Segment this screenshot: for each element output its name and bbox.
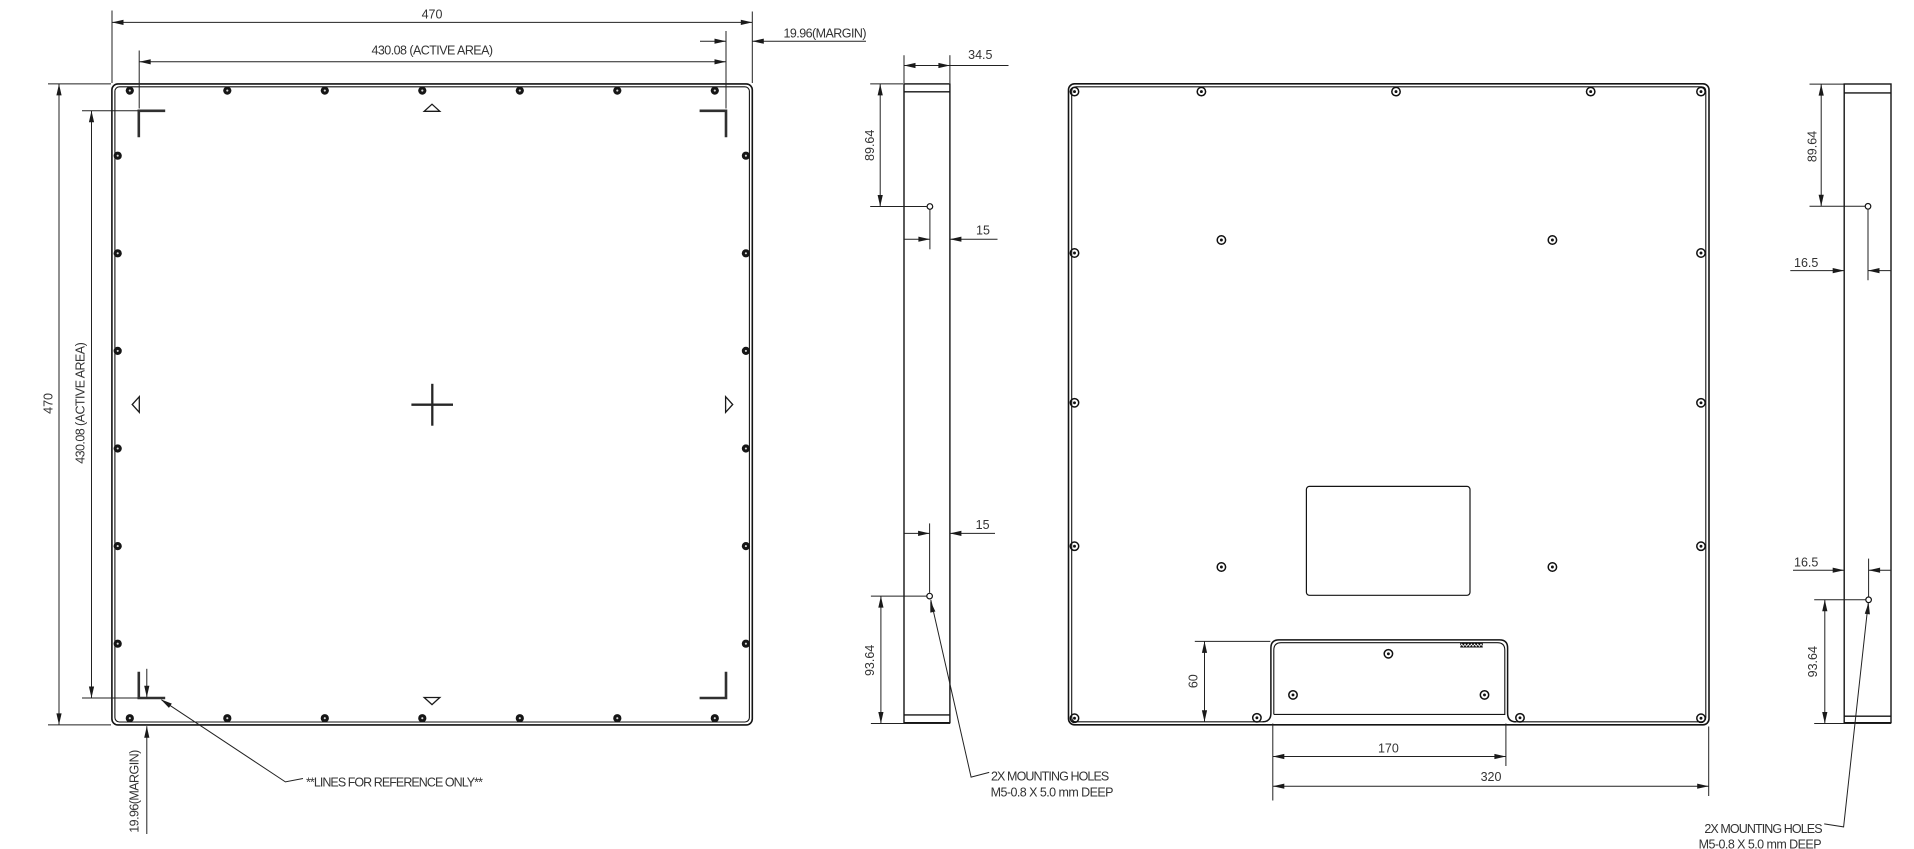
- svg-text:89.64: 89.64: [863, 130, 877, 161]
- svg-text:320: 320: [1481, 770, 1502, 784]
- svg-text:15: 15: [976, 518, 990, 532]
- svg-text:M5-0.8 X 5.0 mm DEEP: M5-0.8 X 5.0 mm DEEP: [991, 785, 1114, 799]
- svg-text:**LINES FOR REFERENCE ONLY**: **LINES FOR REFERENCE ONLY**: [306, 775, 483, 789]
- svg-text:19.96(MARGIN): 19.96(MARGIN): [128, 750, 142, 833]
- svg-text:2X MOUNTING HOLES: 2X MOUNTING HOLES: [1704, 822, 1822, 836]
- svg-text:89.64: 89.64: [1805, 131, 1819, 162]
- svg-text:60: 60: [1186, 674, 1200, 688]
- svg-text:15: 15: [976, 224, 990, 238]
- svg-text:93.64: 93.64: [863, 645, 877, 676]
- svg-text:470: 470: [42, 393, 56, 414]
- svg-text:34.5: 34.5: [968, 48, 992, 62]
- svg-text:2X MOUNTING HOLES: 2X MOUNTING HOLES: [991, 769, 1109, 783]
- svg-text:16.5: 16.5: [1794, 256, 1818, 270]
- svg-text:170: 170: [1378, 742, 1399, 756]
- svg-text:470: 470: [422, 8, 443, 22]
- svg-text:430.08 (ACTIVE AREA): 430.08 (ACTIVE AREA): [371, 44, 492, 58]
- svg-text:M5-0.8 X 5.0 mm DEEP: M5-0.8 X 5.0 mm DEEP: [1699, 838, 1822, 849]
- svg-text:19.96(MARGIN): 19.96(MARGIN): [784, 26, 867, 40]
- svg-text:430.08 (ACTIVE AREA): 430.08 (ACTIVE AREA): [73, 342, 87, 463]
- svg-text:16.5: 16.5: [1794, 556, 1818, 570]
- svg-text:93.64: 93.64: [1806, 646, 1820, 677]
